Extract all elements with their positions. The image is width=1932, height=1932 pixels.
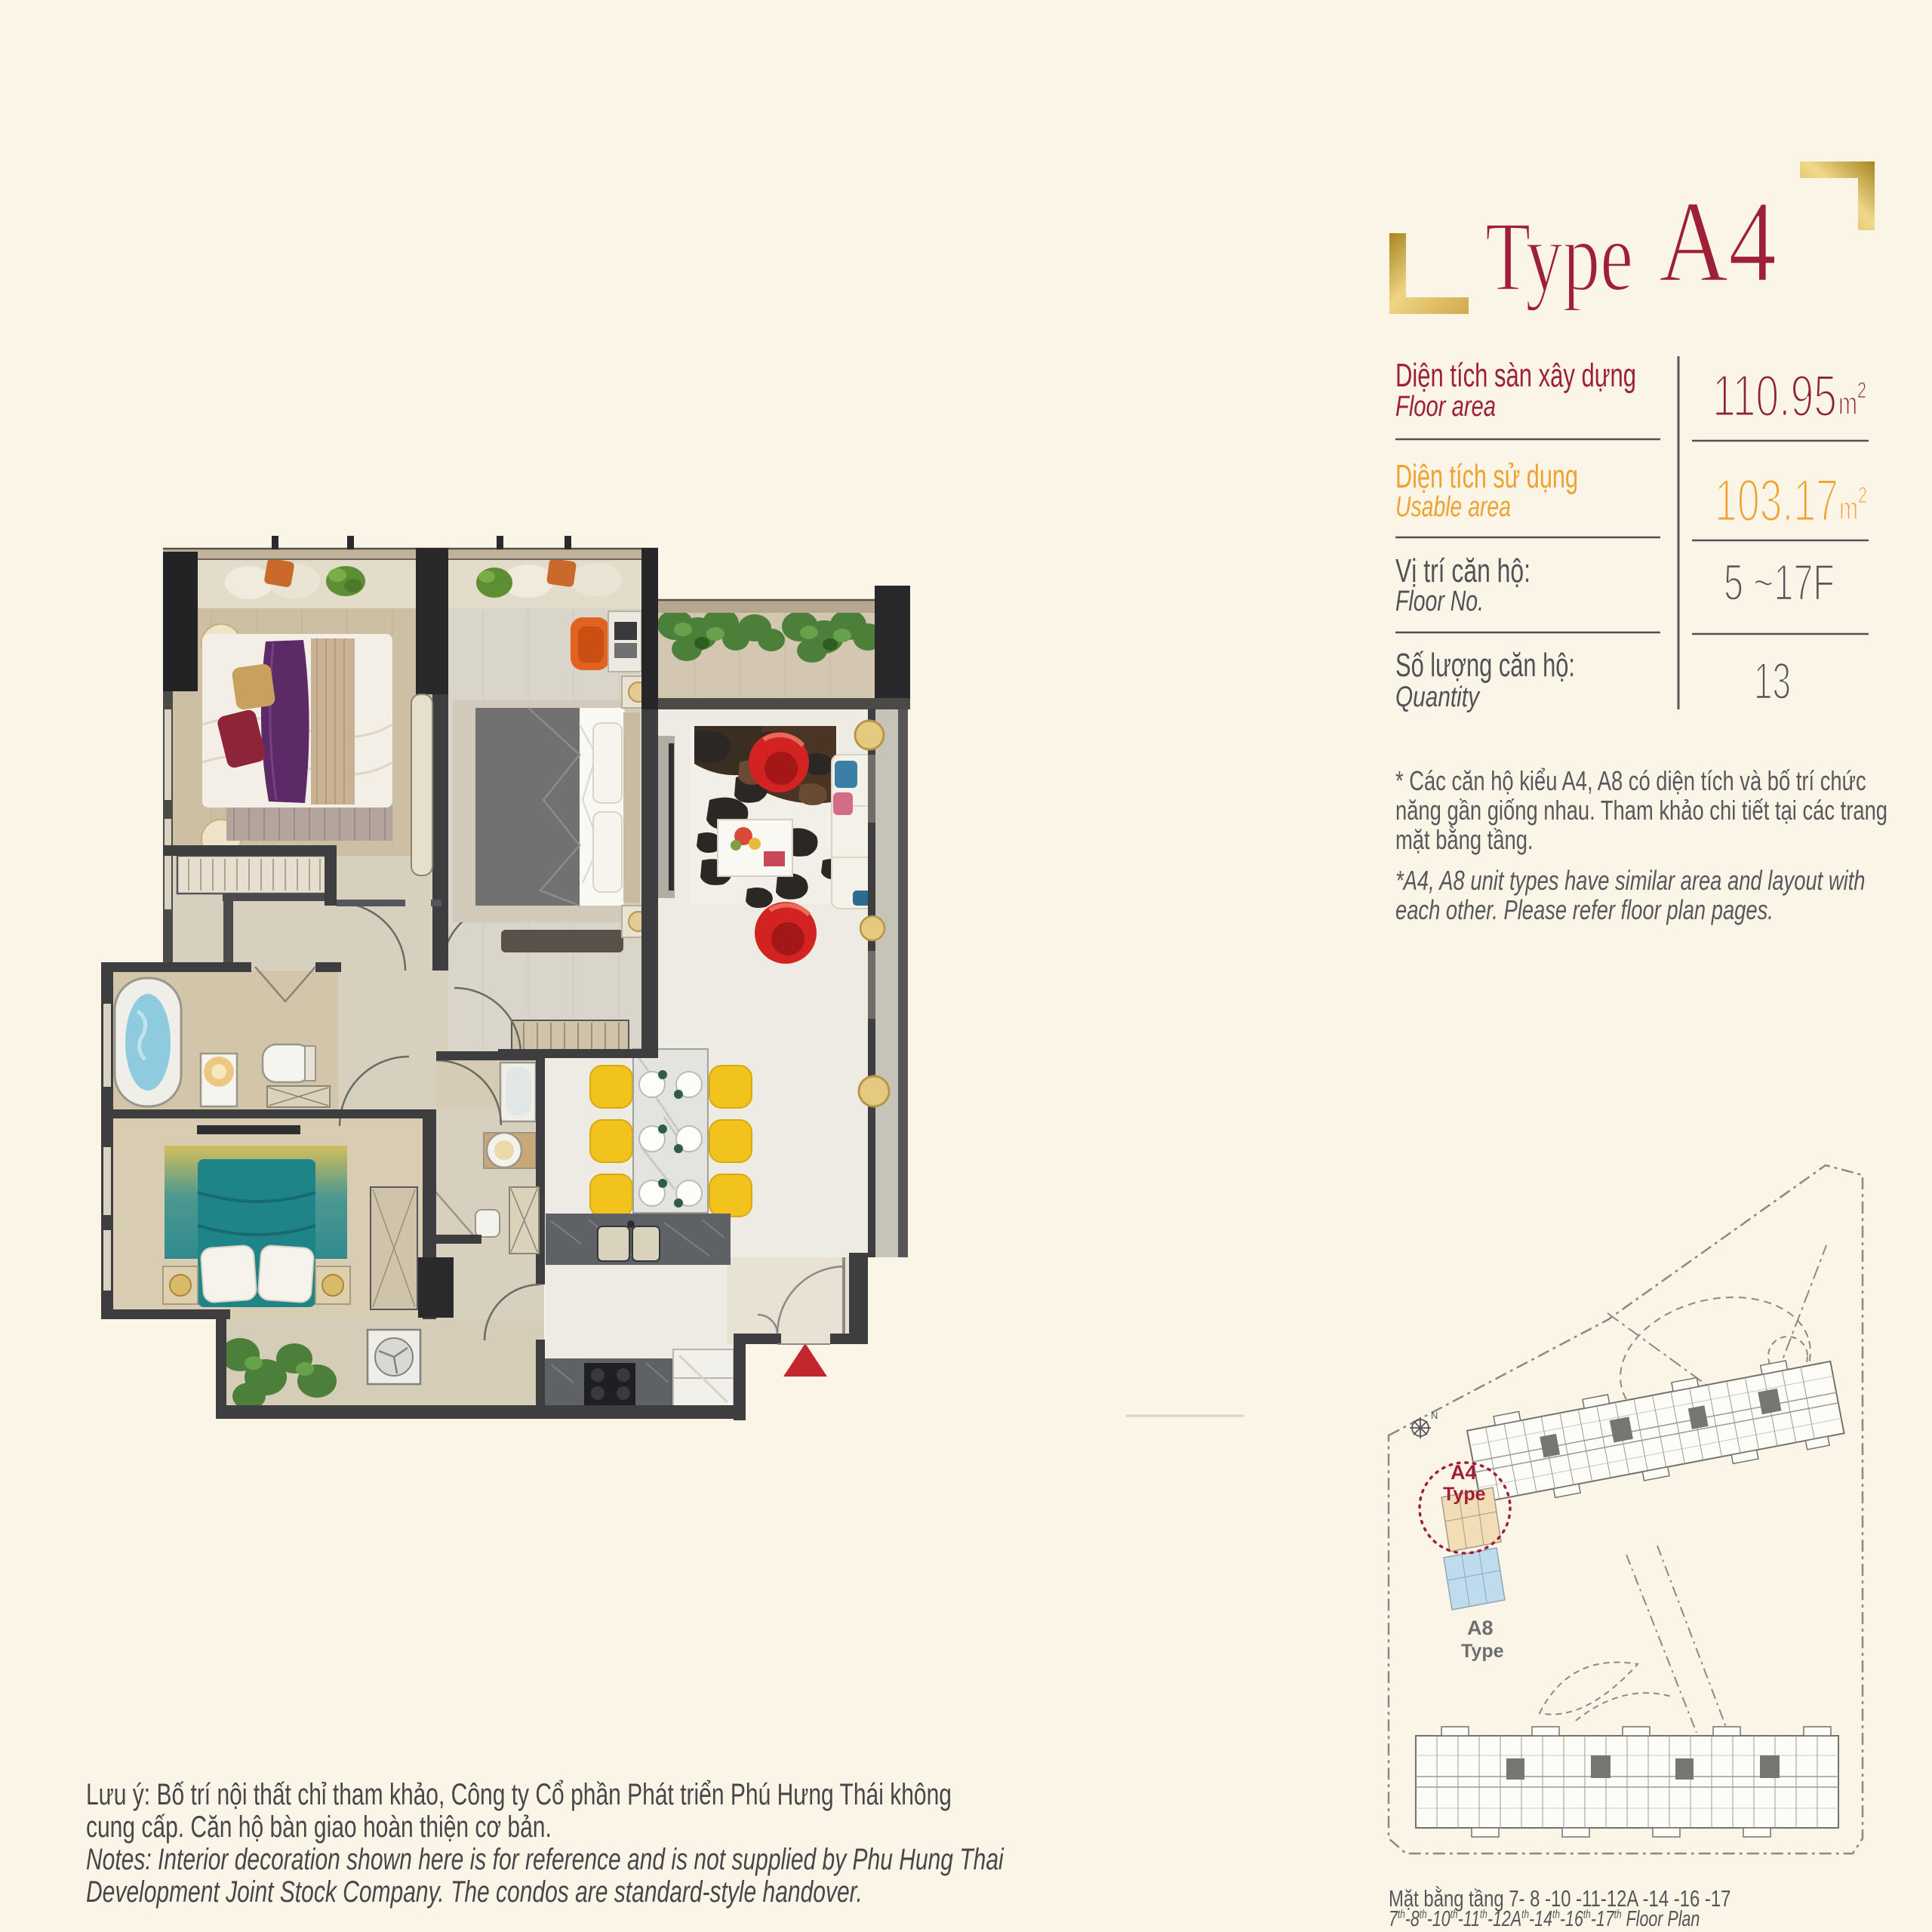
svg-text:110.95: 110.95 <box>1712 362 1837 429</box>
svg-text:Diện tích sàn xây dựng: Diện tích sàn xây dựng <box>1395 357 1636 394</box>
svg-text:2: 2 <box>1858 483 1867 508</box>
svg-text:103.17: 103.17 <box>1715 466 1838 534</box>
svg-text:Usable area: Usable area <box>1395 491 1511 523</box>
svg-text:Type: Type <box>1443 1484 1486 1505</box>
svg-text:m: m <box>1838 386 1857 421</box>
svg-text:m: m <box>1839 491 1858 526</box>
svg-text:Type: Type <box>1485 201 1633 312</box>
svg-text:13: 13 <box>1754 652 1791 710</box>
svg-text:2: 2 <box>1857 378 1866 403</box>
svg-text:A4: A4 <box>1451 1461 1477 1484</box>
svg-text:A4: A4 <box>1659 177 1777 306</box>
svg-text:Type: Type <box>1461 1641 1504 1662</box>
svg-text:Quantity: Quantity <box>1395 681 1481 713</box>
svg-text:Vị trí căn hộ:: Vị trí căn hộ: <box>1395 552 1531 589</box>
svg-text:Số lượng căn hộ:: Số lượng căn hộ: <box>1395 647 1575 684</box>
svg-text:5 ~17F: 5 ~17F <box>1724 554 1835 611</box>
svg-text:Floor area: Floor area <box>1395 391 1496 423</box>
svg-text:Floor No.: Floor No. <box>1395 586 1484 617</box>
svg-text:Diện tích sử dụng: Diện tích sử dụng <box>1395 458 1578 495</box>
svg-text:A8: A8 <box>1467 1617 1494 1639</box>
svg-text:N: N <box>1431 1410 1438 1421</box>
